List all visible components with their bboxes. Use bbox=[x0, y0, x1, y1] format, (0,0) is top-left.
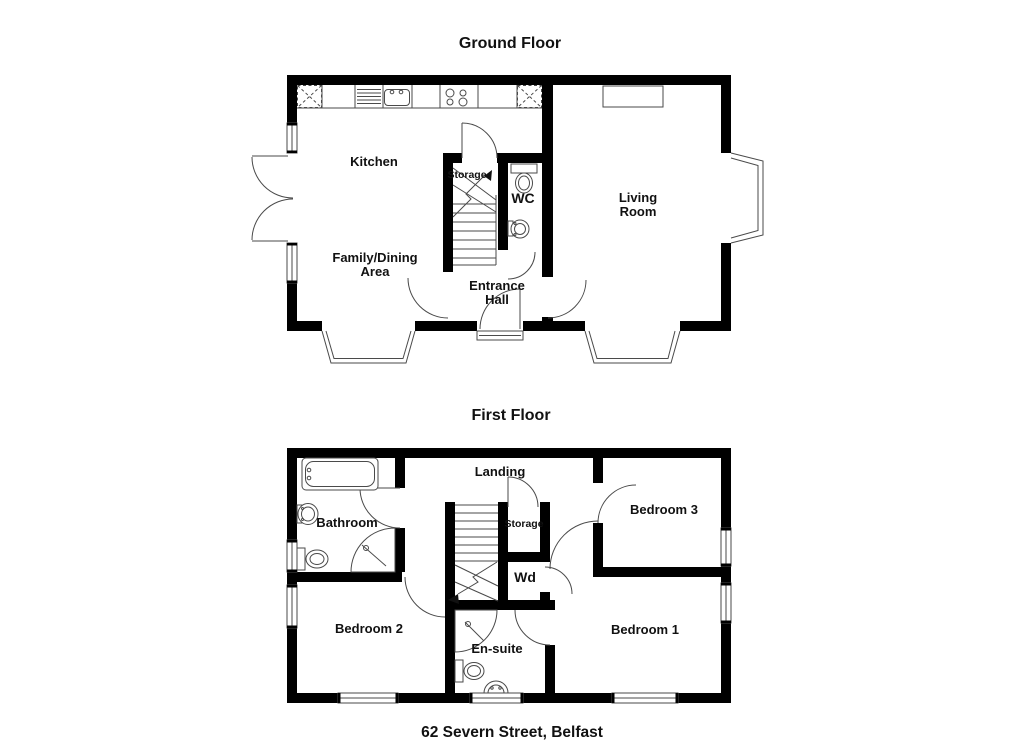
ensuite-label: En-suite bbox=[471, 642, 522, 656]
floorplan-drawing bbox=[0, 0, 1024, 745]
storage-label: Storage bbox=[504, 519, 543, 530]
ground-floor-plan bbox=[252, 75, 763, 363]
bedroom2-label: Bedroom 2 bbox=[335, 622, 403, 636]
family-dining-label: Family/Dining Area bbox=[332, 251, 417, 279]
window bbox=[287, 540, 297, 572]
basin-icon bbox=[484, 681, 508, 693]
french-doors-icon bbox=[252, 156, 293, 241]
entrance-hall-label: Entrance Hall bbox=[469, 279, 525, 307]
toilet-icon bbox=[297, 548, 328, 570]
shower-icon bbox=[351, 528, 395, 572]
toilet-icon bbox=[455, 660, 484, 682]
window bbox=[470, 693, 523, 703]
living-room-label: Living Room bbox=[619, 191, 657, 219]
bedroom2-door-arc bbox=[405, 577, 445, 617]
fireplace-icon bbox=[603, 86, 663, 107]
storage-door-arc bbox=[462, 123, 497, 158]
window bbox=[721, 528, 731, 566]
window bbox=[287, 585, 297, 628]
wardrobe-door-arc bbox=[545, 567, 572, 594]
living-room-door-arc bbox=[548, 280, 586, 318]
bedroom1-door-arc bbox=[550, 521, 598, 569]
window bbox=[338, 693, 398, 703]
first-floor-title: First Floor bbox=[471, 408, 550, 425]
bedroom1-label: Bedroom 1 bbox=[611, 623, 679, 637]
hob-icon bbox=[446, 89, 467, 106]
storage-door-arc bbox=[508, 477, 538, 507]
bay-window bbox=[585, 331, 680, 363]
bathtub-icon bbox=[302, 458, 378, 490]
kitchen-counter bbox=[297, 85, 542, 108]
bathroom-label: Bathroom bbox=[316, 516, 377, 530]
basin-icon bbox=[508, 220, 529, 238]
bay-window bbox=[731, 153, 763, 243]
floorplan-canvas: Ground Floor Kitchen Family/Dining Area … bbox=[0, 0, 1024, 745]
basin-icon bbox=[297, 504, 318, 525]
family-area-door-arc bbox=[408, 278, 448, 318]
storage-label: Storage bbox=[447, 170, 486, 181]
ground-floor-stairs bbox=[453, 168, 496, 265]
wc-door-arc bbox=[508, 252, 535, 279]
window bbox=[287, 123, 297, 153]
window bbox=[612, 693, 678, 703]
toilet-icon bbox=[511, 164, 537, 193]
wardrobe-label: Wd bbox=[514, 570, 536, 585]
window bbox=[721, 583, 731, 623]
kitchen-label: Kitchen bbox=[350, 155, 398, 169]
ground-floor-title: Ground Floor bbox=[459, 36, 561, 53]
bedroom3-label: Bedroom 3 bbox=[630, 503, 698, 517]
first-floor-stairs bbox=[448, 505, 498, 604]
drainer-icon bbox=[357, 90, 381, 104]
landing-label: Landing bbox=[475, 465, 526, 479]
first-floor-plan bbox=[287, 448, 731, 703]
wc-label: WC bbox=[511, 191, 534, 206]
address-caption: 62 Severn Street, Belfast bbox=[421, 725, 603, 741]
window bbox=[287, 243, 297, 283]
bay-window bbox=[322, 331, 415, 363]
sink-icon bbox=[385, 90, 410, 106]
ensuite-door-arc bbox=[515, 610, 550, 645]
corner-unit-icon bbox=[298, 86, 322, 108]
corner-unit-icon bbox=[518, 86, 542, 108]
